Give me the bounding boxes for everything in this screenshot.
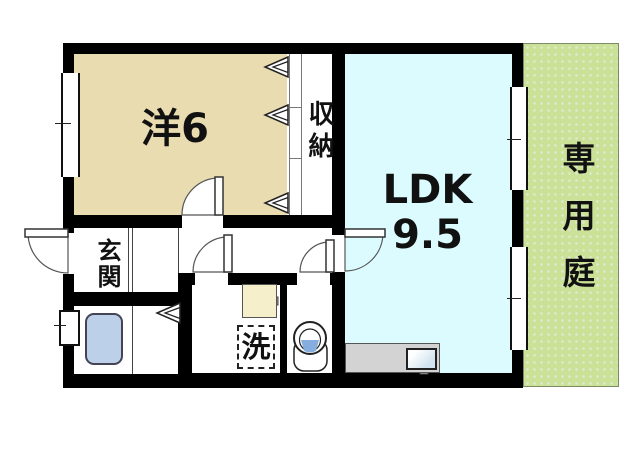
kitchen-sink <box>406 348 437 370</box>
bathroom-arrow-icon <box>157 303 180 323</box>
washroom-door-swing <box>193 237 228 272</box>
closet-label: 収納 <box>301 100 338 164</box>
washroom-door-leaf <box>224 235 232 272</box>
plan-symbols-layer <box>0 0 640 450</box>
ldk-label-line2: 9.5 <box>355 213 500 258</box>
western-door-leaf <box>215 177 223 215</box>
closet-arrow-icon-2 <box>265 105 288 125</box>
ldk-label-line1: LDK <box>355 168 500 213</box>
entrance-door-leaf <box>25 229 68 237</box>
floor-plan: 洋6 LDK 9.5 収納 玄関 専用庭 洗 <box>0 0 640 450</box>
entrance-label: 玄関 <box>90 238 125 290</box>
bathtub <box>85 313 123 365</box>
entrance-door-swing <box>28 233 68 273</box>
garden-label: 専用庭 <box>552 141 600 312</box>
toilet-icon <box>294 322 327 371</box>
western-room-label: 洋6 <box>95 108 255 150</box>
closet-arrow-icon-1 <box>265 57 288 77</box>
western-door-swing <box>182 178 219 215</box>
closet-arrow-icon-3 <box>265 193 288 213</box>
washing-machine-space: 洗 <box>237 325 275 369</box>
ldk-room-label: LDK 9.5 <box>355 168 500 258</box>
washing-machine-label: 洗 <box>241 332 270 362</box>
toilet-door-leaf <box>326 240 334 272</box>
washbasin-counter <box>242 284 277 318</box>
